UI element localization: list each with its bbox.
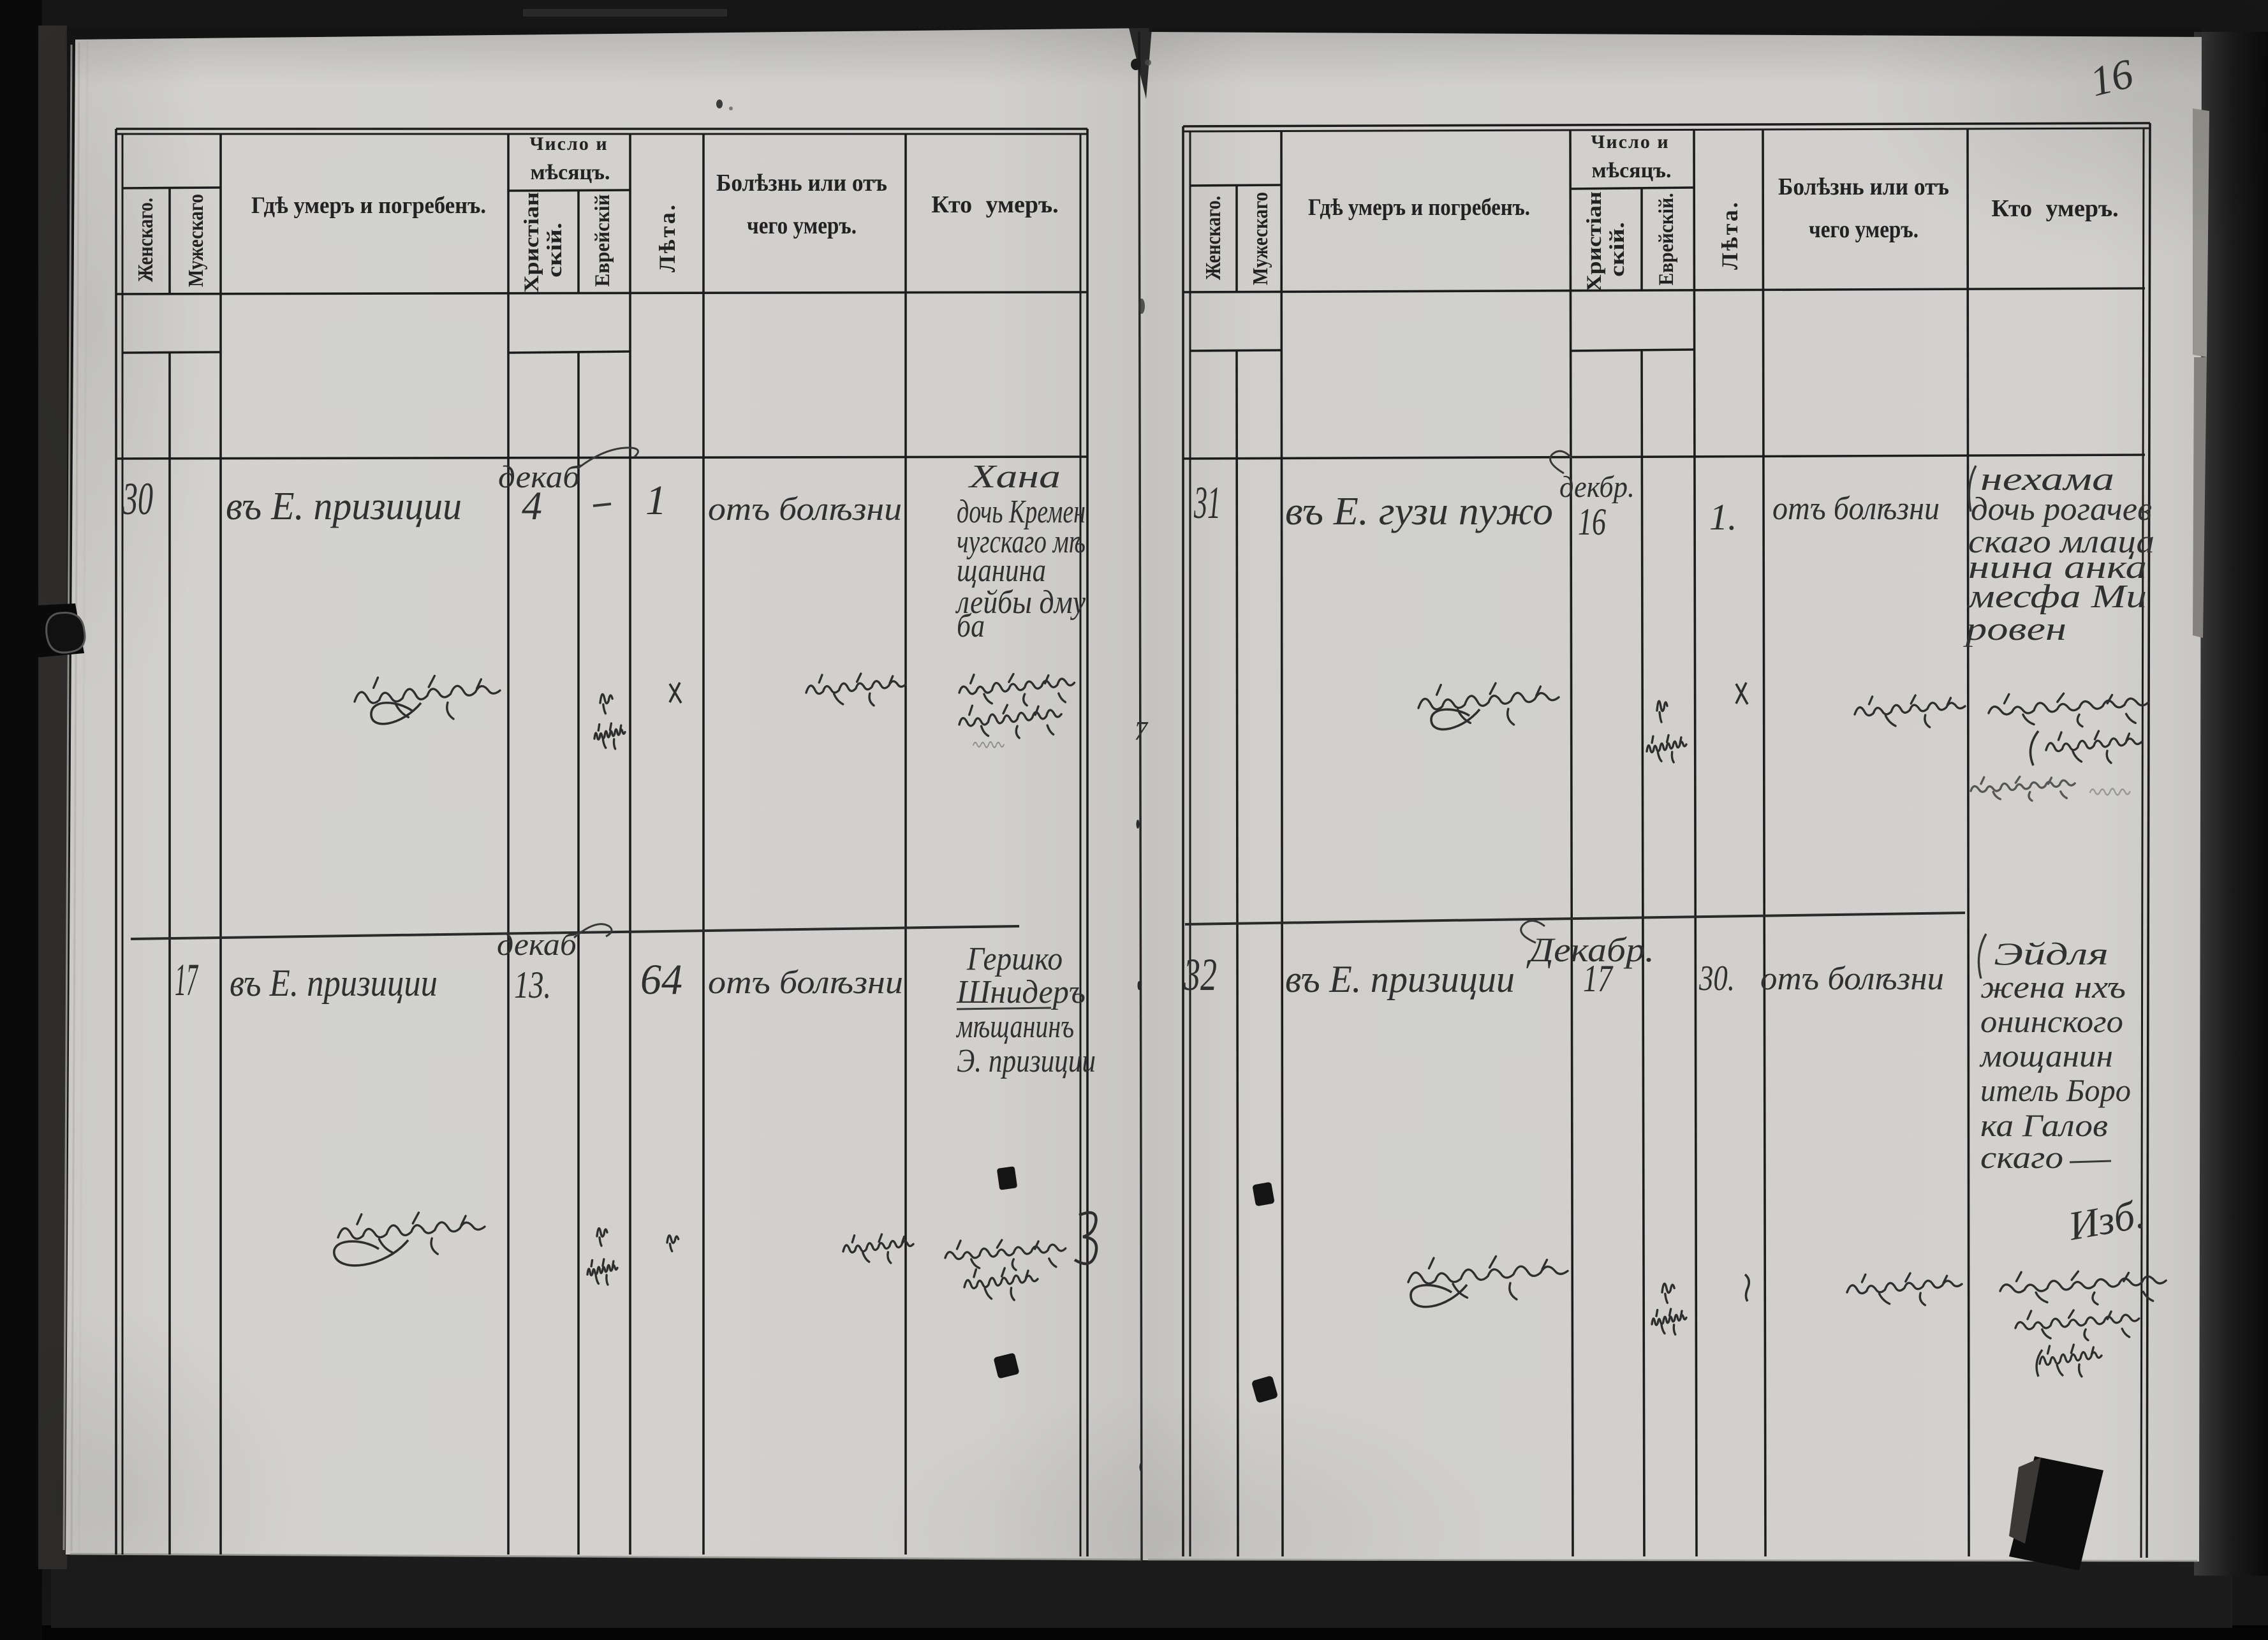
svg-text:мощанин: мощанин [1979,1038,2113,1074]
svg-text:30.: 30. [1698,959,1735,998]
svg-text:дочь рогачев: дочь рогачев [1971,491,2152,528]
svg-text:Кто умеръ.: Кто умеръ. [1991,195,2118,222]
svg-text:отъ болѣзни: отъ болѣзни [708,491,902,528]
svg-text:Христіан: Христіан [520,192,543,293]
svg-text:Эйдля: Эйдля [1994,936,2109,971]
svg-text:Гдѣ умеръ и погребенъ.: Гдѣ умеръ и погребенъ. [251,193,486,219]
svg-text:Гершко: Гершко [966,941,1063,977]
svg-text:Мужескаго: Мужескаго [184,194,208,287]
svg-text:17: 17 [175,954,199,1005]
svg-text:64: 64 [640,955,682,1003]
svg-text:отъ болѣзни: отъ болѣзни [1760,961,1944,997]
svg-text:17: 17 [1583,957,1614,1000]
svg-text:ровен: ровен [1962,611,2066,647]
svg-text:месфа Ми: месфа Ми [1966,579,2147,615]
svg-text:31: 31 [1193,477,1221,528]
svg-text:въ Е. призиции: въ Е. призиции [226,485,462,528]
svg-text:Мужескаго: Мужескаго [1249,192,1272,285]
svg-text:1.: 1. [1709,496,1737,538]
svg-text:4: 4 [522,483,542,528]
svg-text:жена нхъ: жена нхъ [1980,969,2126,1005]
svg-text:Болѣзнь или отъ: Болѣзнь или отъ [1778,174,1949,200]
svg-text:чего умеръ.: чего умеръ. [1809,216,1918,243]
svg-text:отъ болѣзни: отъ болѣзни [1772,491,1940,527]
svg-text:декаб: декаб [497,926,578,962]
svg-text:щанина: щанина [957,552,1046,589]
svg-text:7: 7 [1134,717,1149,746]
svg-text:16: 16 [1578,501,1606,543]
svg-text:ка Галов: ка Галов [1980,1107,2108,1143]
svg-text:Шнидеръ: Шнидеръ [956,974,1086,1010]
svg-text:13.: 13. [514,964,551,1006]
svg-text:Женскаго.: Женскаго. [134,198,158,282]
svg-text:Число и: Число и [1591,131,1669,152]
svg-text:декбр.: декбр. [1559,470,1635,504]
svg-text:отъ болѣзни: отъ болѣзни [708,964,903,1001]
svg-text:въ Е. гузи пужо: въ Е. гузи пужо [1285,490,1553,533]
svg-text:Хана: Хана [968,459,1061,495]
svg-text:мѣсяцъ.: мѣсяцъ. [531,161,610,184]
svg-text:въ Е. призиции: въ Е. призиции [230,962,438,1004]
svg-text:итель Боро: итель Боро [1980,1072,2131,1108]
svg-text:30: 30 [122,473,153,524]
svg-text:Еврейскій.: Еврейскій. [1655,193,1678,286]
svg-text:Христіан: Христіан [1583,191,1606,292]
svg-text:32: 32 [1183,949,1217,1000]
svg-text:Еврейскій: Еврейскій [591,195,614,287]
svg-text:чего умеръ.: чего умеръ. [747,212,857,239]
svg-text:Кто умеръ.: Кто умеръ. [931,191,1058,218]
svg-text:скій.: скій. [543,223,566,277]
svg-text:скій.: скій. [1606,222,1629,277]
svg-text:ба: ба [957,608,985,644]
svg-text:Э. призиции: Э. призиции [957,1043,1096,1079]
svg-text:скаго: скаго [1980,1139,2063,1175]
svg-text:Число и: Число и [529,133,608,154]
svg-text:Женскаго.: Женскаго. [1202,196,1225,280]
svg-text:Болѣзнь или отъ: Болѣзнь или отъ [716,170,887,196]
svg-text:онинского: онинского [1980,1003,2123,1039]
svg-text:Гдѣ умеръ и погребенъ.: Гдѣ умеръ и погребенъ. [1308,195,1530,221]
svg-text:мѣщанинъ: мѣщанинъ [955,1008,1074,1045]
svg-text:1: 1 [645,477,666,524]
svg-text:мѣсяцъ.: мѣсяцъ. [1592,159,1672,182]
svg-text:въ Е. призиции: въ Е. призиции [1285,958,1515,1000]
